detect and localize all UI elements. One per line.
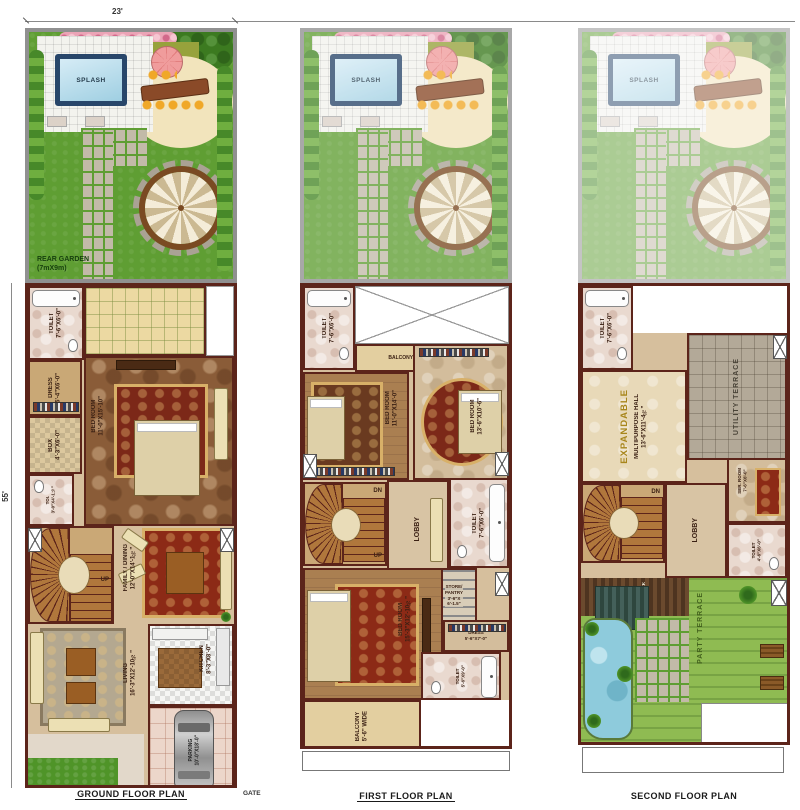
room-label: KITCHEN 8'-3"X8'-0" [199,644,214,674]
room-label: TOILET 7'-6"X6'-0" [472,508,487,538]
plant [739,586,757,604]
room-label: TOI. 3'-0"X4'-1½" [45,486,56,513]
plant [221,612,231,622]
room-expandable-hall: EXPANDABLE MULTIPURPOSE HALL 13'-6"X11'-… [581,370,687,483]
bench [760,676,784,690]
room-label: TOILET 4'-6"X6'-0" [751,539,762,561]
void-area [633,286,787,333]
room-dress: DRESS 5'-4"X6'-0" [28,360,82,416]
gazebo-umbrella [420,172,492,244]
room-label: BALCONY 5'-6" WIDE [355,711,370,741]
bathtub [585,290,629,307]
bar-stools [422,70,452,80]
room-toilet-top: TOILET 7'-6"X6'-0" [303,286,355,370]
room-label: TOILET 7'-6"X6'-0" [600,313,615,343]
room-bedroom-left: BED ROOM 11'-0"X14'-0" [303,372,409,480]
staircase: DN [581,483,665,563]
wardrobe [419,348,489,357]
hedge-right [492,66,507,271]
caption-text: GROUND FLOOR PLAN [75,789,187,800]
gazebo-umbrella [145,172,217,244]
gate-label: GATE [243,790,261,797]
bed [307,590,351,682]
kitchen-island [158,648,202,688]
room-living: LIVING 16'-3"X12'-10½" [28,624,144,734]
wardrobe [311,467,395,476]
stairs-up-label: UP [374,553,382,561]
terrace-void [355,286,509,344]
sofa [48,718,110,732]
room-toilet: TOILET 7'-6"X6'-0" [28,286,84,360]
tv-console [116,360,176,370]
room-label: LIVING 16'-3"X12'-10½" [123,650,138,696]
bathtub [32,290,80,307]
plant [585,622,599,636]
wardrobe [33,402,79,412]
room-label: PARKING 10'-0"X18'-0" [188,735,201,765]
toilet-wc [34,480,44,493]
room-label: FAMILY / DINING 12'-0"X14'-1½" [123,544,138,591]
stairs-landing [331,508,361,542]
bar-stools [700,70,730,80]
floor-plan-sheet: 23' 55' SPLASH REAR GARDEN (7mX9m) [0,0,800,810]
room-label: LOBBY [692,518,701,543]
room-veranda [84,286,206,356]
splash-pool: SPLASH [330,54,402,106]
toilet-wc [68,339,78,352]
kitchen-counter [152,628,208,640]
wardrobe [448,624,506,632]
front-lawn [28,758,118,788]
gazebo-umbrella [698,172,770,244]
rug [40,628,126,726]
room-label: TOILET 5'-6"X9'-0" [455,665,466,687]
plant [617,666,633,682]
terrace-pavers [635,618,689,702]
bed [755,468,781,516]
hedge-right [217,66,232,271]
rear-garden-label: REAR GARDEN (7mX9m) [37,255,89,273]
staircase: DN UP [303,482,387,566]
hedge-left [582,50,597,200]
rear-garden-second: SPLASH [578,28,790,283]
ground-floor-house: TOILET 7'-6"X6'-0" DRESS 5'-4"X6'-0" BOX… [25,283,237,788]
room-label: LOBBY [414,517,423,542]
plant [587,714,601,728]
room-kitchen: KITCHEN 8'-3"X8'-0" [148,624,234,706]
room-lobby: LOBBY [387,480,449,578]
light-shaft [495,452,509,476]
room-balcony-bottom: BALCONY 5'-6" WIDE [303,700,421,749]
hall-expandable-label: EXPANDABLE [619,389,631,464]
room-bedroom: BED ROOM 11'-0"X15'-10" [84,356,234,526]
car: PARKING 10'-0"X18'-0" [174,710,214,788]
stairs-dn-label: DN [651,489,660,497]
left-dimension-line [11,283,12,788]
room-label: STORE/ PANTRY 3'-6"X 6'-1.5" [445,584,463,607]
second-floor-house: TOILET 7'-6"X6'-0" UTILITY TERRACE EXPAN… [578,283,790,745]
parking-bay: PARKING 10'-0"X18'-0" [148,706,234,788]
lounger [85,116,105,127]
hedge-right [770,66,785,271]
light-shaft [303,454,317,478]
void-area [701,703,787,745]
sofa [214,388,228,460]
room-label: BED ROOM 11'-0"X14'-0" [385,390,400,426]
terrace-outline [302,751,510,771]
lounger [638,116,658,127]
caption-ground-floor: GROUND FLOOR PLAN [25,789,237,799]
toilet-wc [431,681,441,694]
caption-text: FIRST FLOOR PLAN [357,791,454,802]
room-label: DRESS 5'-6"X7'-0" [465,630,487,641]
first-floor-house: TOILET 7'-6"X6'-0" BALCONY 3'-3" WIDE BE… [300,283,512,749]
window-bay [206,286,234,356]
room-box: BOX 4'-3"X6'-0" [28,416,82,474]
lounger [600,116,620,127]
room-label: TOILET 7'-6"X6'-0" [49,308,64,338]
room-label: UTILITY TERRACE [733,358,742,435]
caption-first-floor: FIRST FLOOR PLAN [300,791,512,801]
room-label: SER. ROOM 7'-6"X6'-0" [737,468,748,494]
dining-table [166,552,204,594]
room-label: TOILET 7'-6"X6'-0" [322,313,337,343]
room-label: DRESS 5'-4"X6'-0" [48,373,63,403]
sofa [430,498,443,562]
void-area [421,700,509,749]
top-dimension-line [25,21,795,22]
room-ser-room: SER. ROOM 7'-6"X6'-0" [727,458,787,523]
toilet-wc [339,347,349,360]
room-lobby: LOBBY [665,483,727,578]
light-shaft [773,335,787,359]
ground-floor-column: SPLASH REAR GARDEN (7mX9m) TOILET 7'-6"X… [25,28,237,788]
party-terrace-label: PARTY TERRACE [697,592,706,664]
pool-deck: SPLASH [590,36,706,132]
bar-stools [147,70,177,80]
room-label: BED ROOM 13'-6"X10'-6" [470,398,485,435]
coffee-table [66,648,96,676]
splash-pool: SPLASH [608,54,680,106]
splash-label: SPLASH [629,77,658,84]
garden-path [356,132,388,279]
bar-stools [694,100,760,110]
stairs-dn-label: DN [373,488,382,496]
terrace-outline [582,747,784,773]
room-dress: DRESS 5'-6"X7'-0" [443,620,509,652]
light-shaft [495,572,509,596]
pool-deck: SPLASH [37,36,153,132]
room-label: BOX 4'-3"X6'-0" [48,430,63,460]
left-height-dimension: 55' [1,491,10,502]
room-family-dining: FAMILY / DINING 12'-0"X14'-1½" [114,526,234,624]
light-shaft [771,580,787,606]
coffee-table [66,682,96,704]
room-toilet-mid: TOILET 7'-6"X6'-0" [449,478,509,568]
hedge-left [29,50,44,200]
room-toilet-bottom: TOILET 5'-6"X9'-0" [421,652,501,700]
rear-garden-first: SPLASH [300,28,512,283]
bench [760,644,784,658]
lounger [47,116,67,127]
room-label: BED ROOM 15'-3"X12'-10½" [398,596,413,642]
room-toilet-mid: TOILET 4'-6"X6'-0" [727,523,787,578]
bathtub [489,484,505,562]
bar-stools [416,100,482,110]
room-utility-terrace: UTILITY TERRACE [687,333,787,460]
bar-stools [141,100,207,110]
room-label: BED ROOM 11'-0"X15'-10" [91,396,106,436]
tv-console [422,598,431,654]
bathtub [307,290,351,307]
toilet-wc [769,557,779,570]
lounger [360,116,380,127]
splash-label: SPLASH [351,77,380,84]
stairs-landing [609,507,639,539]
toilet-wc [617,347,627,360]
first-floor-column: SPLASH TOILET 7'-6"X6'-0" BALCON [300,28,512,788]
light-shaft [28,528,42,552]
splash-pool: SPLASH [55,54,127,106]
top-width-dimension: 23' [112,7,123,16]
bathtub [481,656,497,698]
kitchen-counter [216,628,230,686]
pool-deck: SPLASH [312,36,428,132]
light-shaft [220,528,234,552]
splash-label: SPLASH [76,77,105,84]
stairs-landing [58,556,90,594]
hedge-left [304,50,319,200]
sofa [30,632,44,704]
bed [134,420,200,496]
rear-garden-ground: SPLASH REAR GARDEN (7mX9m) [25,28,237,283]
bed [307,396,345,460]
caption-second-floor: SECOND FLOOR PLAN [578,791,790,801]
garden-path [634,132,666,279]
toilet-wc [457,545,467,558]
hall-name-label: MULTIPURPOSE HALL 13'-6"X11'-4½" [634,394,649,459]
stairs-up-label: UP [101,577,109,585]
room-toi-small: TOI. 3'-0"X4'-1½" [28,474,74,526]
room-toilet-top: TOILET 7'-6"X6'-0" [581,286,633,370]
caption-text: SECOND FLOOR PLAN [631,791,737,801]
lounger [322,116,342,127]
second-floor-column: SPLASH TOILET 7'-6"X6'-0" UTILIT [578,28,790,788]
